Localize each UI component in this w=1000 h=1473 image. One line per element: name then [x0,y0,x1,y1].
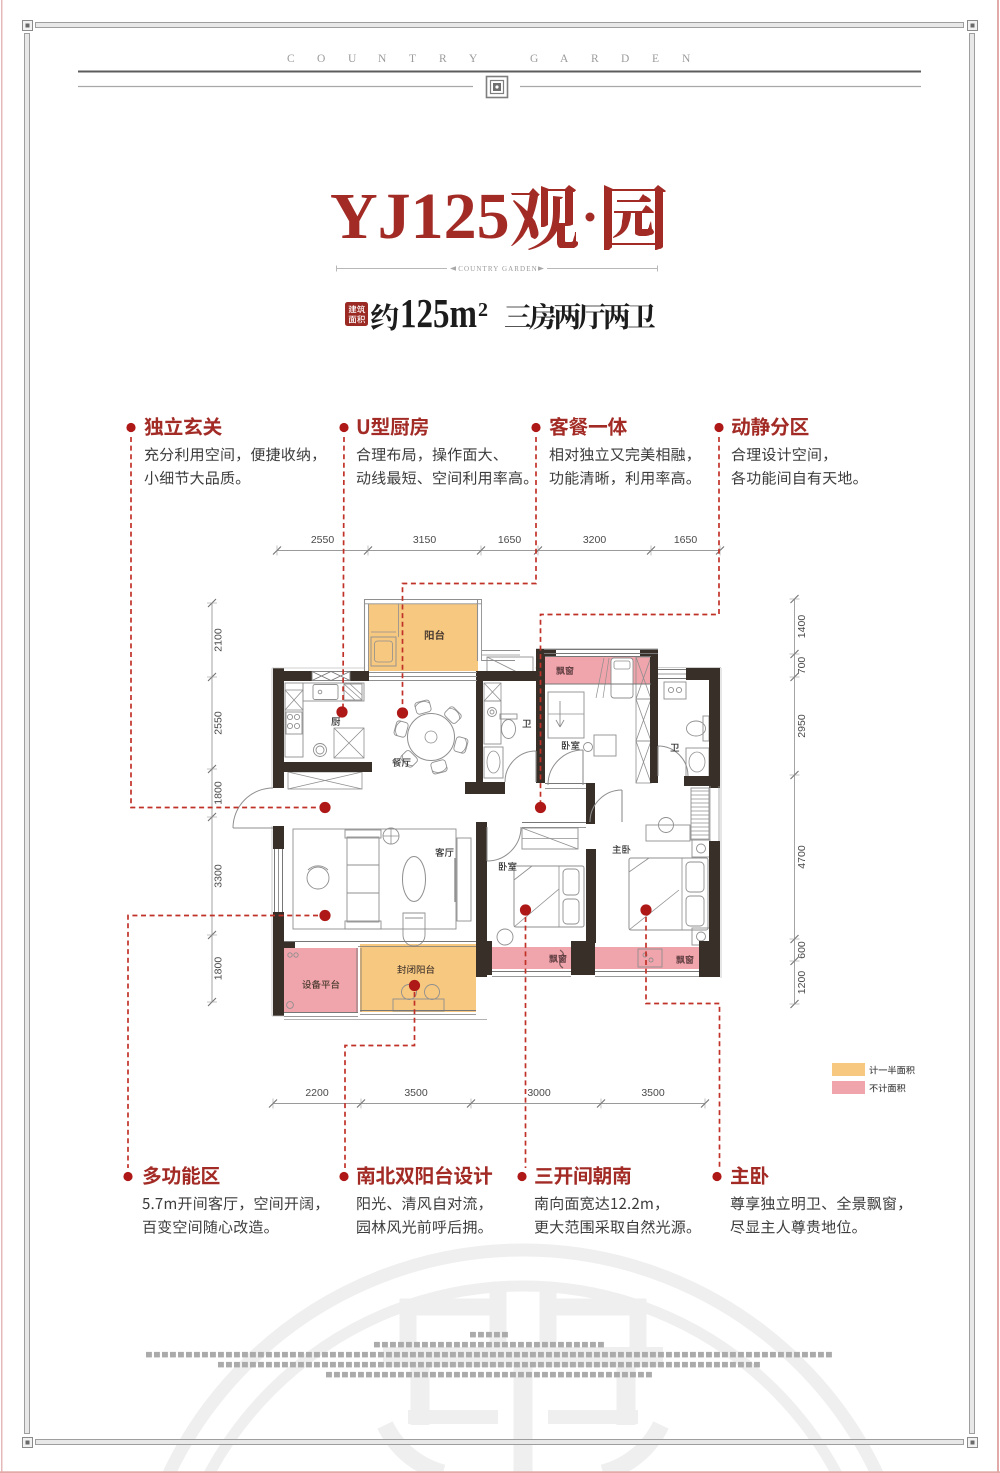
svg-text:600: 600 [796,941,808,959]
svg-text:4700: 4700 [796,845,808,869]
svg-text:3500: 3500 [404,1087,428,1099]
svg-text:1650: 1650 [498,534,522,546]
svg-text:2100: 2100 [213,628,225,652]
svg-text:COUNTRY GARDEN: COUNTRY GARDEN [458,265,538,273]
svg-text:2200: 2200 [305,1087,329,1099]
svg-text:2: 2 [478,299,488,321]
svg-text:3200: 3200 [583,534,607,546]
svg-text:2950: 2950 [796,714,808,738]
svg-text:3000: 3000 [527,1087,551,1099]
svg-text:2550: 2550 [213,711,225,735]
svg-text:700: 700 [796,657,808,675]
svg-text:1200: 1200 [796,971,808,995]
svg-text:1800: 1800 [213,957,225,981]
svg-text:1400: 1400 [796,615,808,639]
svg-text:YJ125: YJ125 [330,180,510,253]
svg-text:1650: 1650 [674,534,698,546]
svg-text:125m: 125m [400,290,477,336]
svg-text:3300: 3300 [213,864,225,888]
svg-text:2550: 2550 [311,534,335,546]
svg-text:3150: 3150 [413,534,437,546]
svg-text:1800: 1800 [213,781,225,805]
svg-text:3500: 3500 [641,1087,665,1099]
